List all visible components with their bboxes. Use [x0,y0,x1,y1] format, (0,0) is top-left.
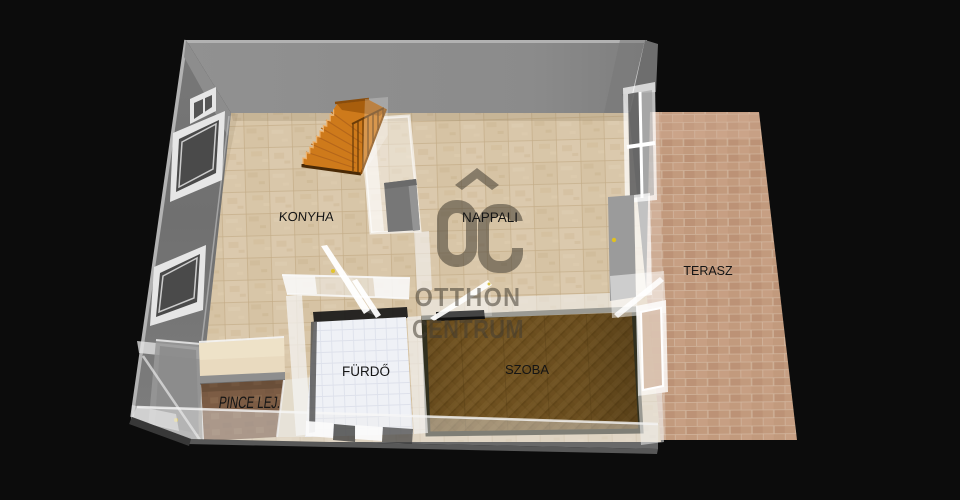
svg-text:FÜRDŐ: FÜRDŐ [342,364,390,379]
svg-text:NAPPALI: NAPPALI [462,210,518,225]
svg-text:CENTRUM: CENTRUM [412,315,524,344]
svg-text:SZOBA: SZOBA [505,362,549,377]
svg-text:PINCE LEJ.: PINCE LEJ. [218,394,282,412]
svg-text:TERASZ: TERASZ [683,264,733,278]
svg-text:KONYHA: KONYHA [278,209,334,224]
svg-text:OTTHON: OTTHON [415,284,522,312]
